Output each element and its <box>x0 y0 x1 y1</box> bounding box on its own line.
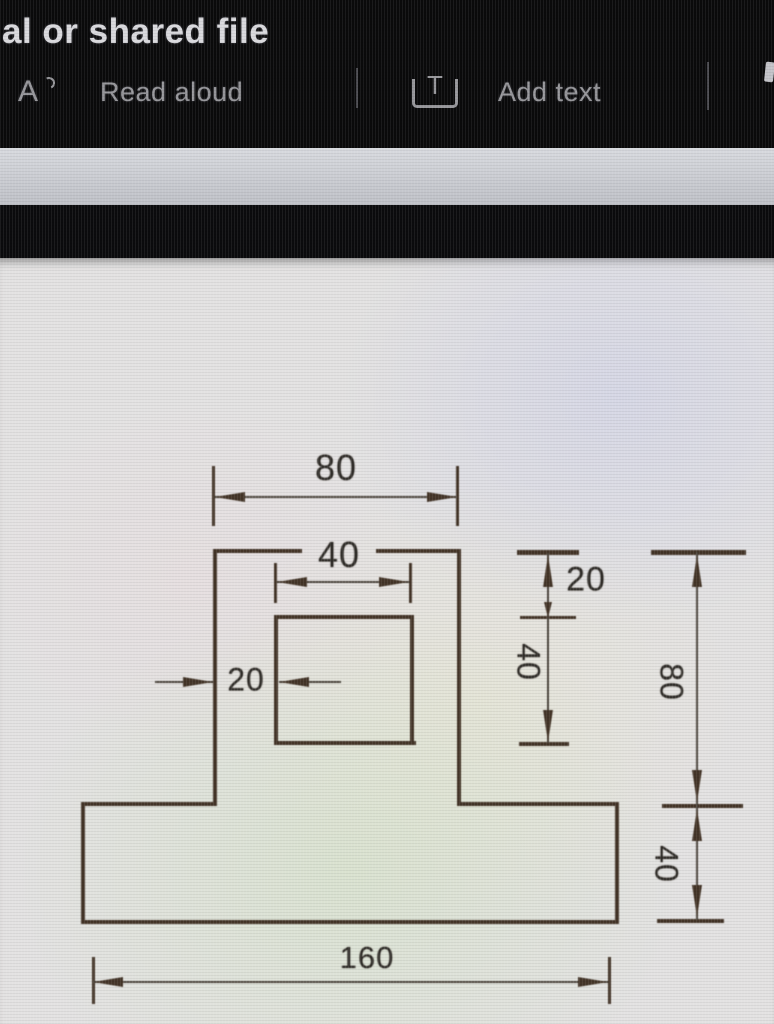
arrowhead-left <box>215 492 245 502</box>
outline-base-bottom-edge <box>81 920 619 924</box>
arrowhead-down <box>692 770 702 802</box>
arrowhead-left <box>277 577 307 587</box>
arrowhead-right <box>578 977 608 987</box>
arrowhead-up <box>692 555 702 587</box>
outline-hole-right-edge <box>410 615 414 745</box>
ext-tick <box>519 742 569 746</box>
outline-column-left-edge <box>213 551 217 806</box>
dim-label-column-height: 80 <box>653 663 690 701</box>
outline-base-left-edge <box>81 802 85 924</box>
dim-label-hole-height: 40 <box>510 643 547 681</box>
dim-label-base-height: 40 <box>648 845 685 883</box>
arrowhead-right <box>427 492 457 502</box>
pdf-viewer-header: al or shared file A Read aloud T Add tex… <box>0 0 774 148</box>
dim-label-base-width: 160 <box>340 940 395 976</box>
sound-wave-icon <box>41 75 56 90</box>
dim-label-hole-offset-left: 20 <box>227 662 265 699</box>
arrowhead-right <box>379 577 409 587</box>
dim-label-top-width: 80 <box>315 447 357 489</box>
outline-base-top-edge-left <box>83 802 215 806</box>
add-text-button[interactable]: T Add text <box>412 72 601 112</box>
ext-tick <box>409 563 412 603</box>
black-band <box>0 205 774 258</box>
arrowhead-down <box>543 710 553 742</box>
arrowhead-up <box>543 555 553 587</box>
ext-tick <box>608 957 611 1004</box>
arrowhead-right <box>183 677 213 687</box>
arrowhead-down-small <box>544 602 552 618</box>
document-page: 80 40 20 20 40 80 40 160 <box>0 258 774 1024</box>
read-aloud-label: Read aloud <box>100 77 243 108</box>
arrowhead-left <box>279 677 309 687</box>
outline-base-top-edge-right <box>459 802 619 806</box>
toolbar-separator <box>356 68 358 108</box>
light-gray-band <box>0 148 774 205</box>
outline-column-top-edge-right <box>376 549 461 553</box>
add-text-icon: T <box>412 79 458 108</box>
cropped-toolbar-item <box>764 62 774 83</box>
arrowhead-up <box>692 809 702 841</box>
dim-label-hole-offset-top: 20 <box>566 561 606 600</box>
screen-photo: al or shared file A Read aloud T Add tex… <box>0 0 774 1024</box>
window-title-fragment: al or shared file <box>2 12 269 52</box>
dim-label-hole-width: 40 <box>318 534 360 576</box>
ext-tick <box>662 804 743 808</box>
outline-column-right-edge <box>457 551 461 806</box>
add-text-label: Add text <box>498 77 601 108</box>
arrowhead-down <box>692 885 702 917</box>
dim-line-top-width <box>215 496 457 498</box>
arrowhead-left <box>93 977 123 987</box>
outline-column-top-edge-left <box>213 549 302 553</box>
toolbar-separator <box>707 62 709 110</box>
dim-line-column-height <box>696 552 698 920</box>
dim-line-base-width <box>93 981 608 983</box>
add-text-icon-glyph: T <box>427 72 443 98</box>
ext-tick <box>657 919 724 923</box>
outline-hole-left-edge <box>274 615 278 745</box>
engineering-drawing: 80 40 20 20 40 80 40 160 <box>0 258 774 1024</box>
read-aloud-icon: A <box>18 77 38 107</box>
outline-hole-top-edge <box>274 615 414 619</box>
outline-base-right-edge <box>615 802 619 924</box>
outline-hole-bottom-edge <box>274 741 416 745</box>
read-aloud-button[interactable]: A Read aloud <box>18 72 243 112</box>
